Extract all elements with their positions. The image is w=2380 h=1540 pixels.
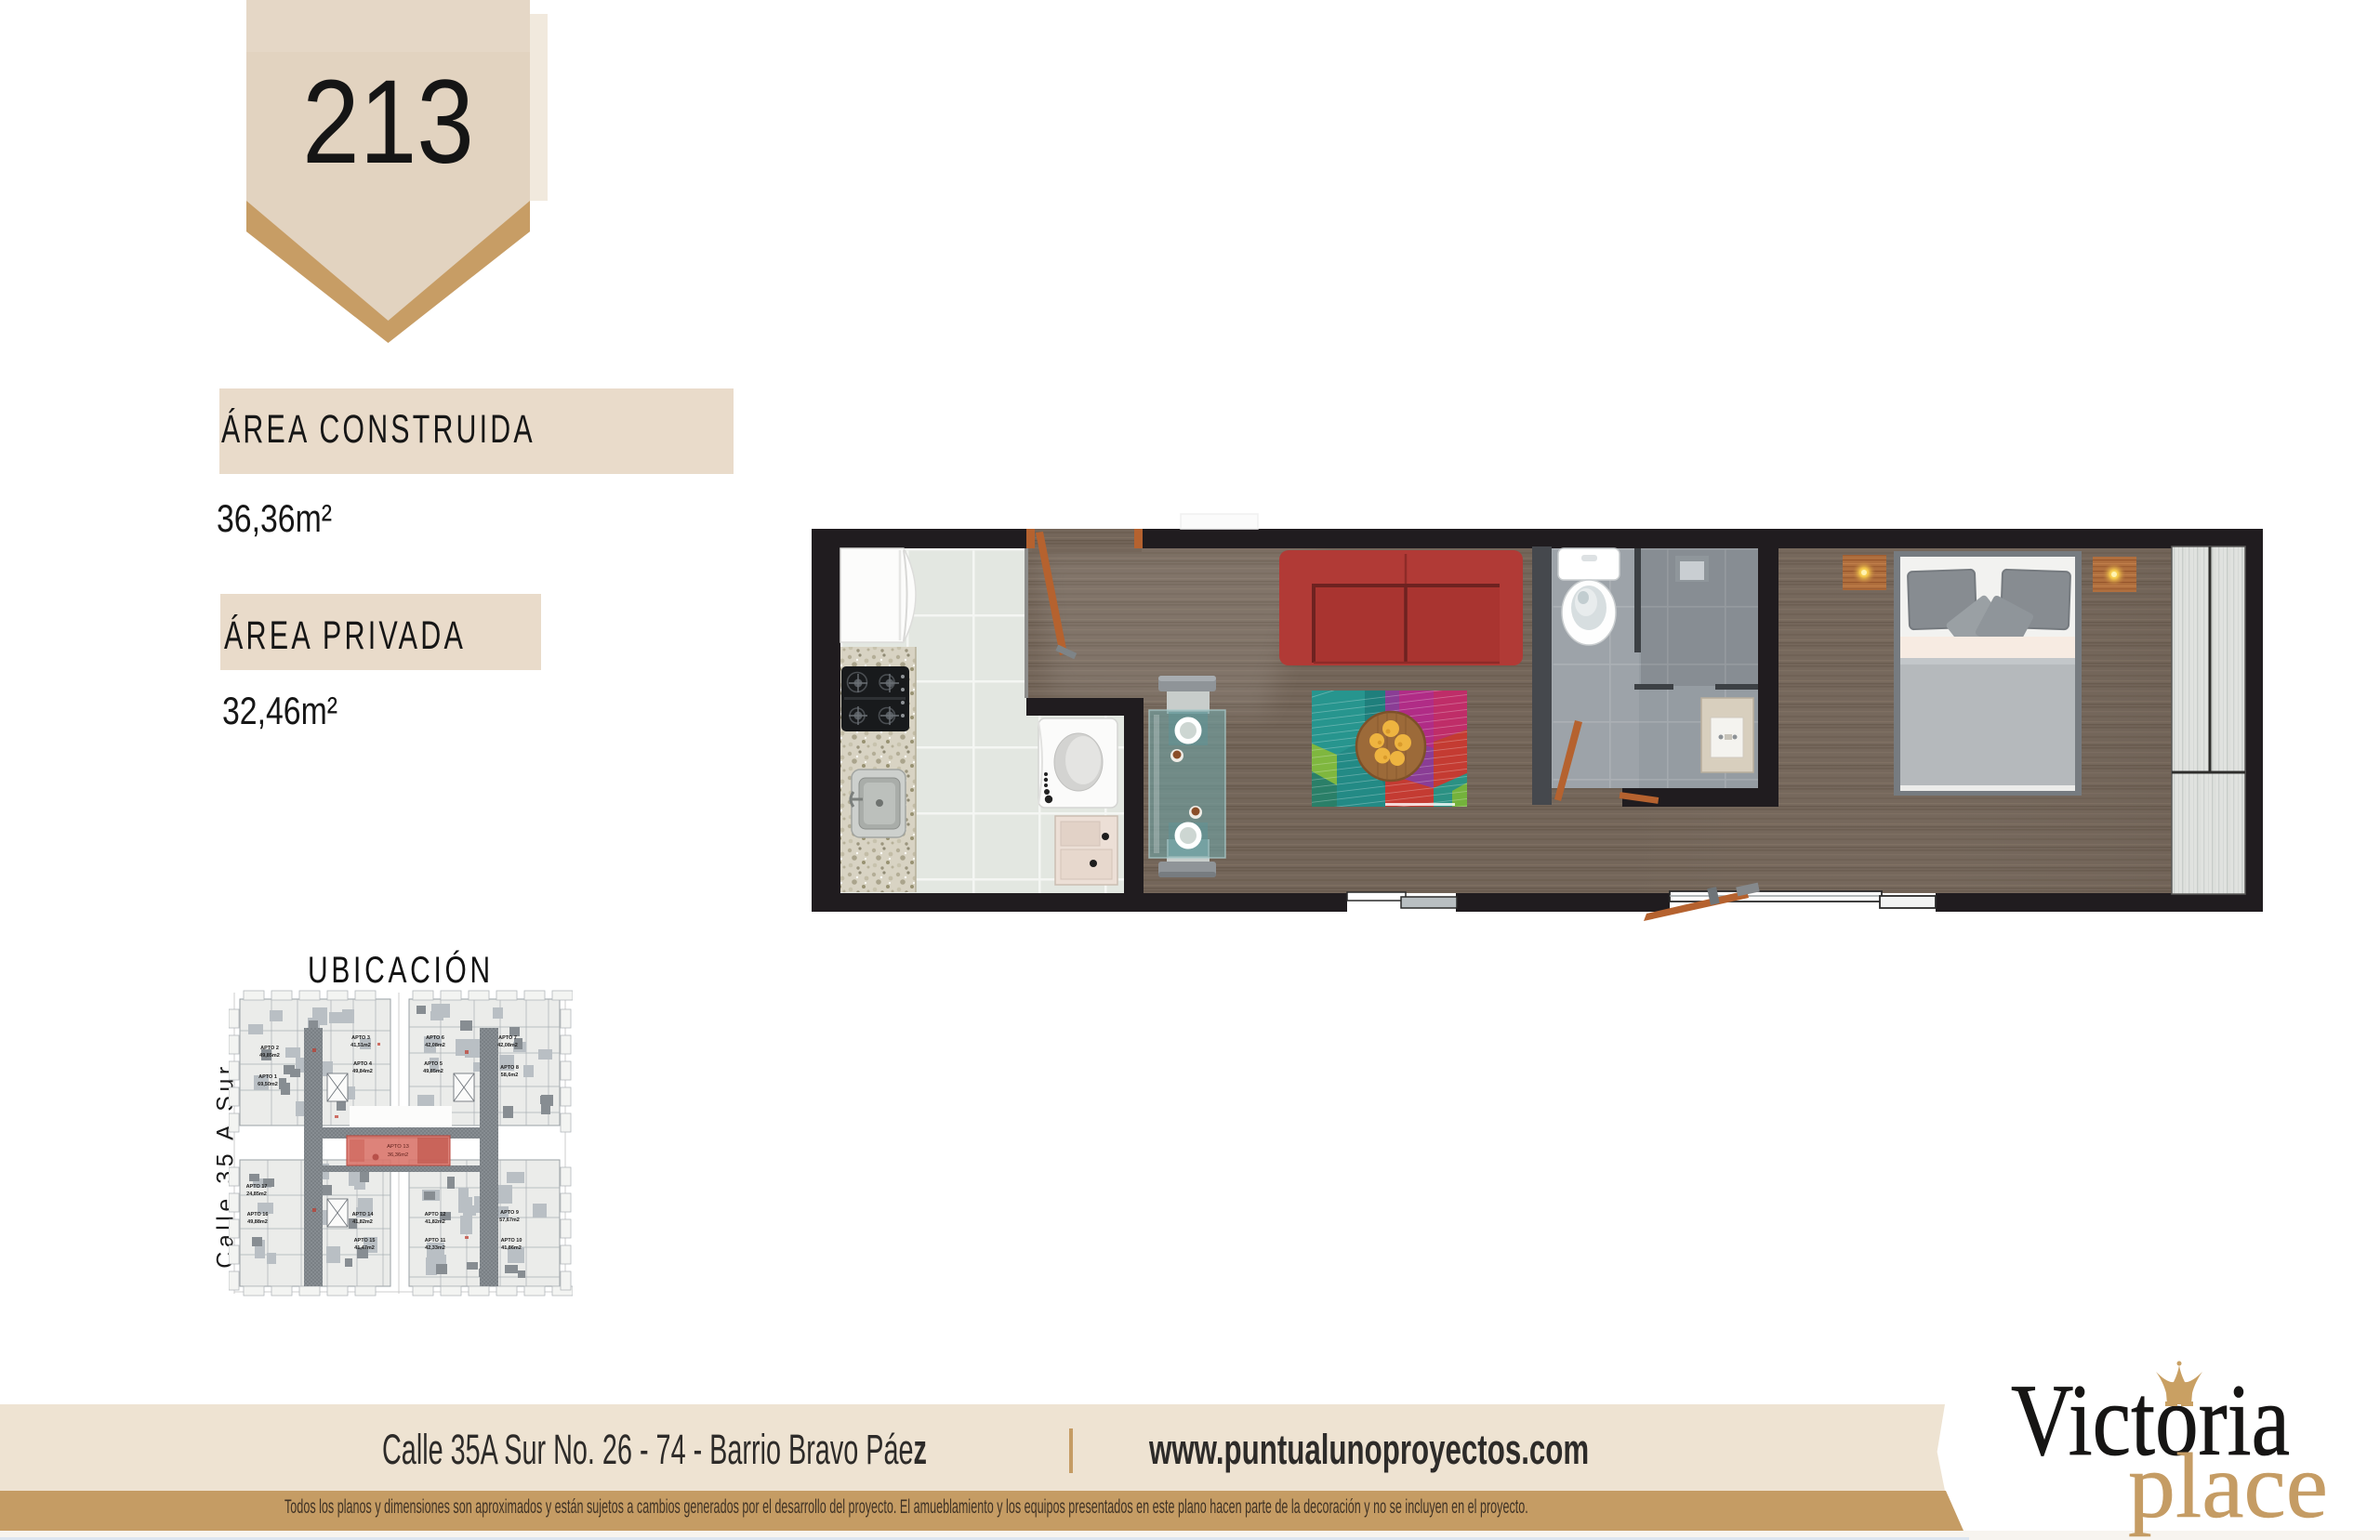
- svg-text:APTO 12: APTO 12: [425, 1212, 446, 1218]
- svg-text:41,82m2: 41,82m2: [352, 1219, 373, 1225]
- svg-text:APTO 4: APTO 4: [353, 1061, 373, 1067]
- svg-text:APTO 11: APTO 11: [425, 1238, 446, 1244]
- svg-text:place: place: [2128, 1434, 2328, 1537]
- svg-text:24,85m2: 24,85m2: [246, 1191, 267, 1197]
- svg-text:APTO 2: APTO 2: [260, 1046, 279, 1051]
- svg-text:APTO 7: APTO 7: [498, 1035, 517, 1041]
- svg-text:58,6m2: 58,6m2: [501, 1073, 519, 1078]
- svg-text:APTO 6: APTO 6: [426, 1035, 444, 1041]
- svg-text:42,08m2: 42,08m2: [425, 1043, 445, 1048]
- svg-text:49,88m2: 49,88m2: [247, 1219, 268, 1225]
- svg-text:APTO 16: APTO 16: [247, 1212, 269, 1218]
- svg-text:42,33m2: 42,33m2: [425, 1245, 445, 1251]
- svg-text:69,50m2: 69,50m2: [258, 1082, 278, 1087]
- svg-text:APTO 9: APTO 9: [500, 1210, 519, 1216]
- svg-text:APTO 15: APTO 15: [354, 1238, 376, 1244]
- svg-text:APTO 1: APTO 1: [258, 1074, 277, 1080]
- svg-text:APTO 13: APTO 13: [387, 1144, 409, 1150]
- svg-text:APTO 17: APTO 17: [246, 1184, 268, 1190]
- svg-text:APTO 3: APTO 3: [351, 1035, 370, 1041]
- svg-text:36,36m2: 36,36m2: [388, 1152, 409, 1158]
- svg-text:APTO 5: APTO 5: [424, 1061, 443, 1067]
- svg-text:42,08m2: 42,08m2: [497, 1043, 518, 1048]
- svg-text:57,67m2: 57,67m2: [499, 1218, 520, 1223]
- svg-text:49,85m2: 49,85m2: [423, 1069, 443, 1074]
- svg-text:41,86m2: 41,86m2: [501, 1245, 522, 1251]
- svg-text:49,84m2: 49,84m2: [352, 1069, 373, 1074]
- svg-text:49,85m2: 49,85m2: [259, 1053, 280, 1059]
- svg-text:APTO 14: APTO 14: [352, 1212, 375, 1218]
- svg-text:41,82m2: 41,82m2: [425, 1219, 445, 1225]
- svg-text:APTO 10: APTO 10: [501, 1238, 522, 1244]
- svg-text:41,51m2: 41,51m2: [350, 1043, 371, 1048]
- svg-text:APTO 8: APTO 8: [500, 1065, 519, 1071]
- svg-text:41,47m2: 41,47m2: [354, 1245, 375, 1251]
